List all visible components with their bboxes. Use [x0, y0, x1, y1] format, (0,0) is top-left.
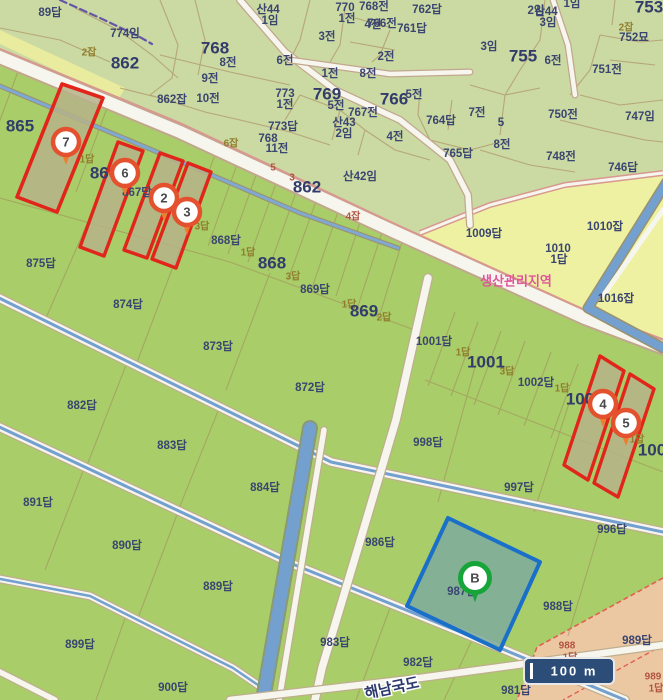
- parcel-label: 766: [380, 89, 408, 108]
- parcel-label: 3답: [500, 366, 516, 378]
- parcel-label: 8전: [360, 66, 377, 80]
- parcel-label: 3답: [286, 271, 302, 283]
- parcel-label: 752묘: [619, 31, 649, 44]
- parcel-label: 981답: [501, 683, 531, 697]
- parcel-label: 산43: [332, 115, 355, 129]
- parcel-label: 868: [258, 253, 286, 272]
- parcel-label: 2답: [377, 312, 393, 324]
- parcel-label: 989: [645, 672, 662, 683]
- parcel-label: 768: [201, 38, 229, 57]
- parcel-label: 산42임: [343, 169, 377, 183]
- parcel-label: 2임: [528, 4, 545, 17]
- parcel-label: 753: [635, 0, 663, 16]
- parcel-label: 882답: [67, 398, 97, 412]
- parcel-label: 1전: [322, 66, 339, 80]
- parcel-label: 89답: [38, 5, 62, 19]
- parcel-label: 1답: [241, 247, 257, 259]
- parcel-label: 2잡: [82, 47, 98, 59]
- parcel-label: 1임: [262, 14, 279, 27]
- parcel-label: 5전: [328, 98, 345, 112]
- parcel-label: 1답: [551, 252, 568, 266]
- cadastral-map: 89답774임2잡862산441임3전4전산443임768전7701전766전7…: [0, 0, 663, 700]
- parcel-label: 750전: [548, 107, 578, 121]
- parcel-label: 865: [6, 116, 34, 135]
- parcel-label: 747임: [625, 110, 655, 123]
- parcel-label: 6전: [545, 53, 562, 67]
- parcel-label: 7전: [469, 105, 486, 119]
- parcel-label: 890답: [112, 538, 142, 552]
- parcel-label: 5: [270, 163, 276, 174]
- parcel-label: 774임: [110, 27, 140, 40]
- parcel-label: 891답: [23, 495, 53, 509]
- parcel-label: 1임: [564, 0, 581, 10]
- parcel-label: 873답: [203, 339, 233, 353]
- parcel-label: 1009답: [466, 226, 503, 240]
- parcel-label: 1016잡: [598, 291, 635, 305]
- parcel-label: 100: [638, 440, 663, 459]
- parcel-label: 868답: [211, 233, 241, 247]
- parcel-label: 869: [350, 301, 378, 320]
- parcel-label: 8전: [220, 55, 237, 69]
- parcel-label: 8전: [494, 137, 511, 151]
- parcel-label: 862: [293, 177, 321, 196]
- parcel-label: 762답: [412, 2, 442, 16]
- parcel-label: 872답: [295, 380, 325, 394]
- marker-pin-label: 4: [599, 396, 607, 411]
- parcel-label: 3전: [319, 29, 336, 43]
- parcel-label: 3임: [540, 16, 557, 29]
- parcel-label: 768전: [359, 0, 389, 13]
- marker-pin-label: 2: [160, 190, 167, 205]
- parcel-label: 869답: [300, 282, 330, 296]
- marker-pin-label: 7: [62, 134, 69, 149]
- parcel-label: 862잡: [157, 92, 187, 106]
- parcel-label: 997답: [504, 480, 534, 494]
- parcel-label: 6잡: [224, 138, 240, 150]
- parcel-label: 989답: [622, 633, 652, 647]
- parcel-label: 5: [498, 117, 505, 129]
- parcel-label: 884답: [250, 480, 280, 494]
- parcel-label: 10전: [196, 91, 219, 105]
- parcel-label: 899답: [65, 637, 95, 651]
- parcel-label: 996답: [597, 522, 627, 536]
- parcel-label: 1전: [339, 11, 356, 25]
- zone-label: 생산관리지역: [480, 273, 552, 288]
- parcel-label: 862: [111, 53, 139, 72]
- marker-pin-label: 5: [622, 415, 629, 430]
- parcel-label: 1002답: [518, 375, 555, 389]
- parcel-label: 1001답: [416, 334, 453, 348]
- parcel-label: 2전: [378, 49, 395, 63]
- parcel-label: 3임: [481, 40, 498, 53]
- parcel-label: 3: [289, 173, 295, 184]
- parcel-label: 761답: [397, 21, 427, 35]
- parcel-label: 5전: [406, 87, 423, 101]
- parcel-label: 874답: [113, 297, 143, 311]
- parcel-label: 748전: [546, 149, 576, 163]
- parcel-label: 11전: [266, 141, 289, 155]
- parcel-label: 1답: [649, 683, 663, 695]
- parcel-label: 6전: [277, 53, 294, 67]
- parcel-label: 765답: [443, 146, 473, 160]
- parcel-label: 988답: [543, 599, 573, 613]
- marker-pin-label: B: [470, 570, 479, 585]
- parcel-label: 889답: [203, 579, 233, 593]
- scale-bar-tick: [530, 663, 533, 679]
- parcel-label: 4잡: [346, 211, 362, 223]
- parcel-label: 773답: [268, 119, 298, 133]
- parcel-label: 755: [509, 46, 537, 65]
- parcel-label: 4전: [387, 129, 404, 143]
- marker-pin-label: 6: [121, 165, 128, 180]
- parcel-label: 988: [559, 641, 576, 652]
- parcel-label: 산44: [256, 2, 280, 16]
- parcel-label: 1010잡: [587, 219, 624, 233]
- parcel-label: 9전: [202, 71, 219, 85]
- parcel-label: 766전: [367, 16, 397, 30]
- parcel-label: 875답: [26, 256, 56, 270]
- map-canvas: 89답774임2잡862산441임3전4전산443임768전7701전766전7…: [0, 0, 663, 700]
- parcel-label: 746답: [608, 160, 638, 174]
- parcel-label: 2임: [336, 127, 353, 140]
- parcel-label: 764답: [426, 113, 456, 127]
- parcel-label: 1전: [277, 97, 294, 111]
- parcel-label: 982답: [403, 655, 433, 669]
- parcel-label: 986답: [365, 535, 395, 549]
- parcel-label: 900답: [158, 680, 188, 694]
- parcel-label: 751전: [592, 62, 622, 76]
- scale-bar-label: 100 m: [551, 663, 598, 678]
- parcel-label: 998답: [413, 435, 443, 449]
- parcel-label: 983답: [320, 635, 350, 649]
- scale-bar: 100 m: [524, 658, 614, 684]
- parcel-label: 883답: [157, 438, 187, 452]
- marker-pin-label: 3: [183, 204, 190, 219]
